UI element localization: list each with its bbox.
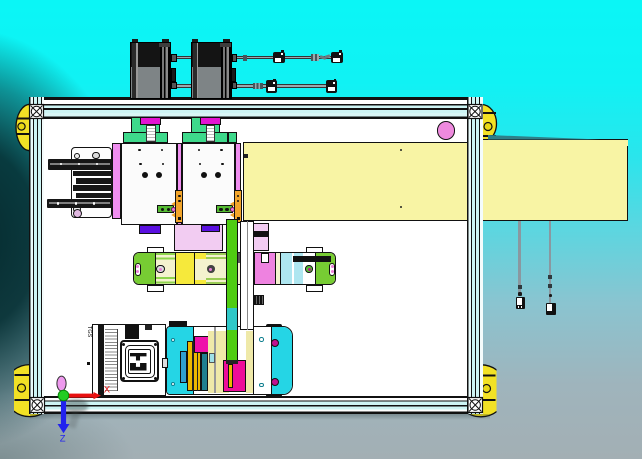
svg-text:Z: Z [60, 434, 66, 445]
svg-text:X: X [104, 385, 111, 396]
